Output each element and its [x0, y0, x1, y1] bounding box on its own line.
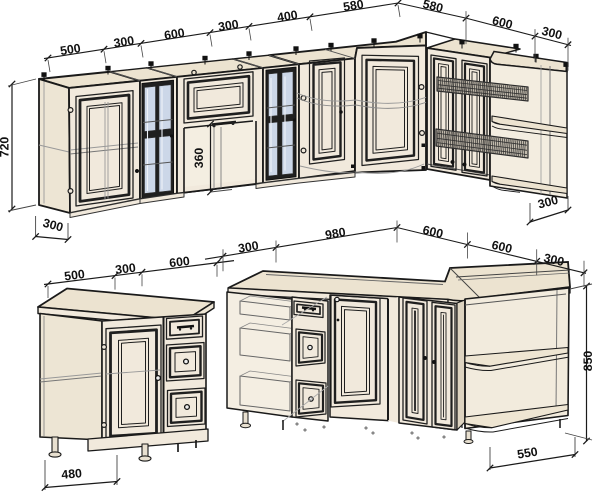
- svg-text:480: 480: [61, 466, 83, 482]
- svg-text:600: 600: [168, 254, 190, 270]
- svg-text:300: 300: [114, 261, 136, 277]
- svg-text:850: 850: [581, 351, 595, 372]
- svg-text:720: 720: [0, 137, 12, 158]
- svg-text:500: 500: [63, 267, 85, 283]
- svg-text:360: 360: [192, 148, 206, 169]
